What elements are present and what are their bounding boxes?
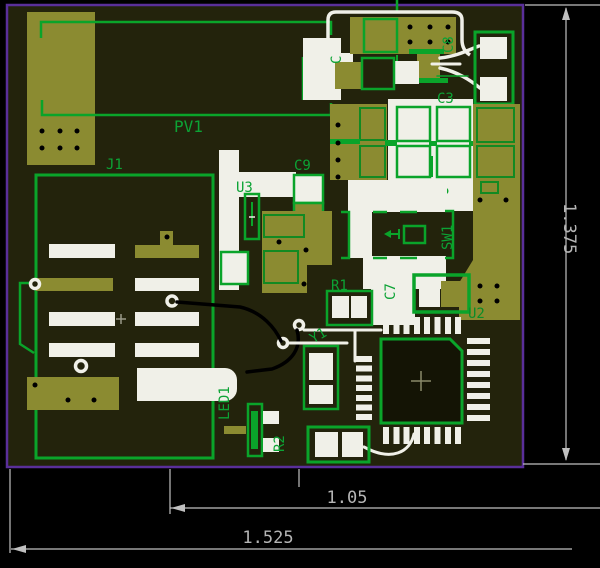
label-c7: C7	[383, 283, 399, 300]
pad-top-left[interactable]	[27, 12, 95, 165]
component-y1[interactable]	[304, 346, 338, 409]
label-led1: LED1	[217, 386, 233, 420]
dim-text-total-width: 1.525	[238, 529, 298, 547]
component-u2-ic[interactable]	[381, 339, 462, 423]
ic-pins-right	[467, 338, 490, 426]
dim-text-height: 1.375	[560, 203, 578, 254]
label-pv1: PV1	[174, 119, 203, 135]
dim-text-inner-width: 1.05	[317, 489, 377, 507]
label-c1: C	[329, 56, 345, 64]
pcb-canvas[interactable]	[0, 0, 600, 568]
pad-block-left	[330, 104, 387, 180]
label-c8: C8	[441, 36, 457, 53]
label-r1: R1	[331, 278, 348, 294]
pcb-layout-view: PV1 J1 C9 U3 C C8 C3 SW1 R1 C7 U2 Y1 LED…	[0, 0, 600, 568]
label-u3: U3	[236, 180, 253, 196]
label-u2: U2	[468, 306, 485, 322]
label-j1: J1	[106, 157, 123, 173]
label-r2: R2	[272, 435, 288, 452]
label-c9: C9	[294, 158, 311, 174]
label-c3: C3	[437, 91, 454, 107]
ic-pins-left	[356, 356, 372, 422]
ic-pins-bottom	[383, 427, 463, 444]
label-sw1: SW1	[440, 225, 456, 250]
ic-pins-top	[383, 317, 463, 334]
